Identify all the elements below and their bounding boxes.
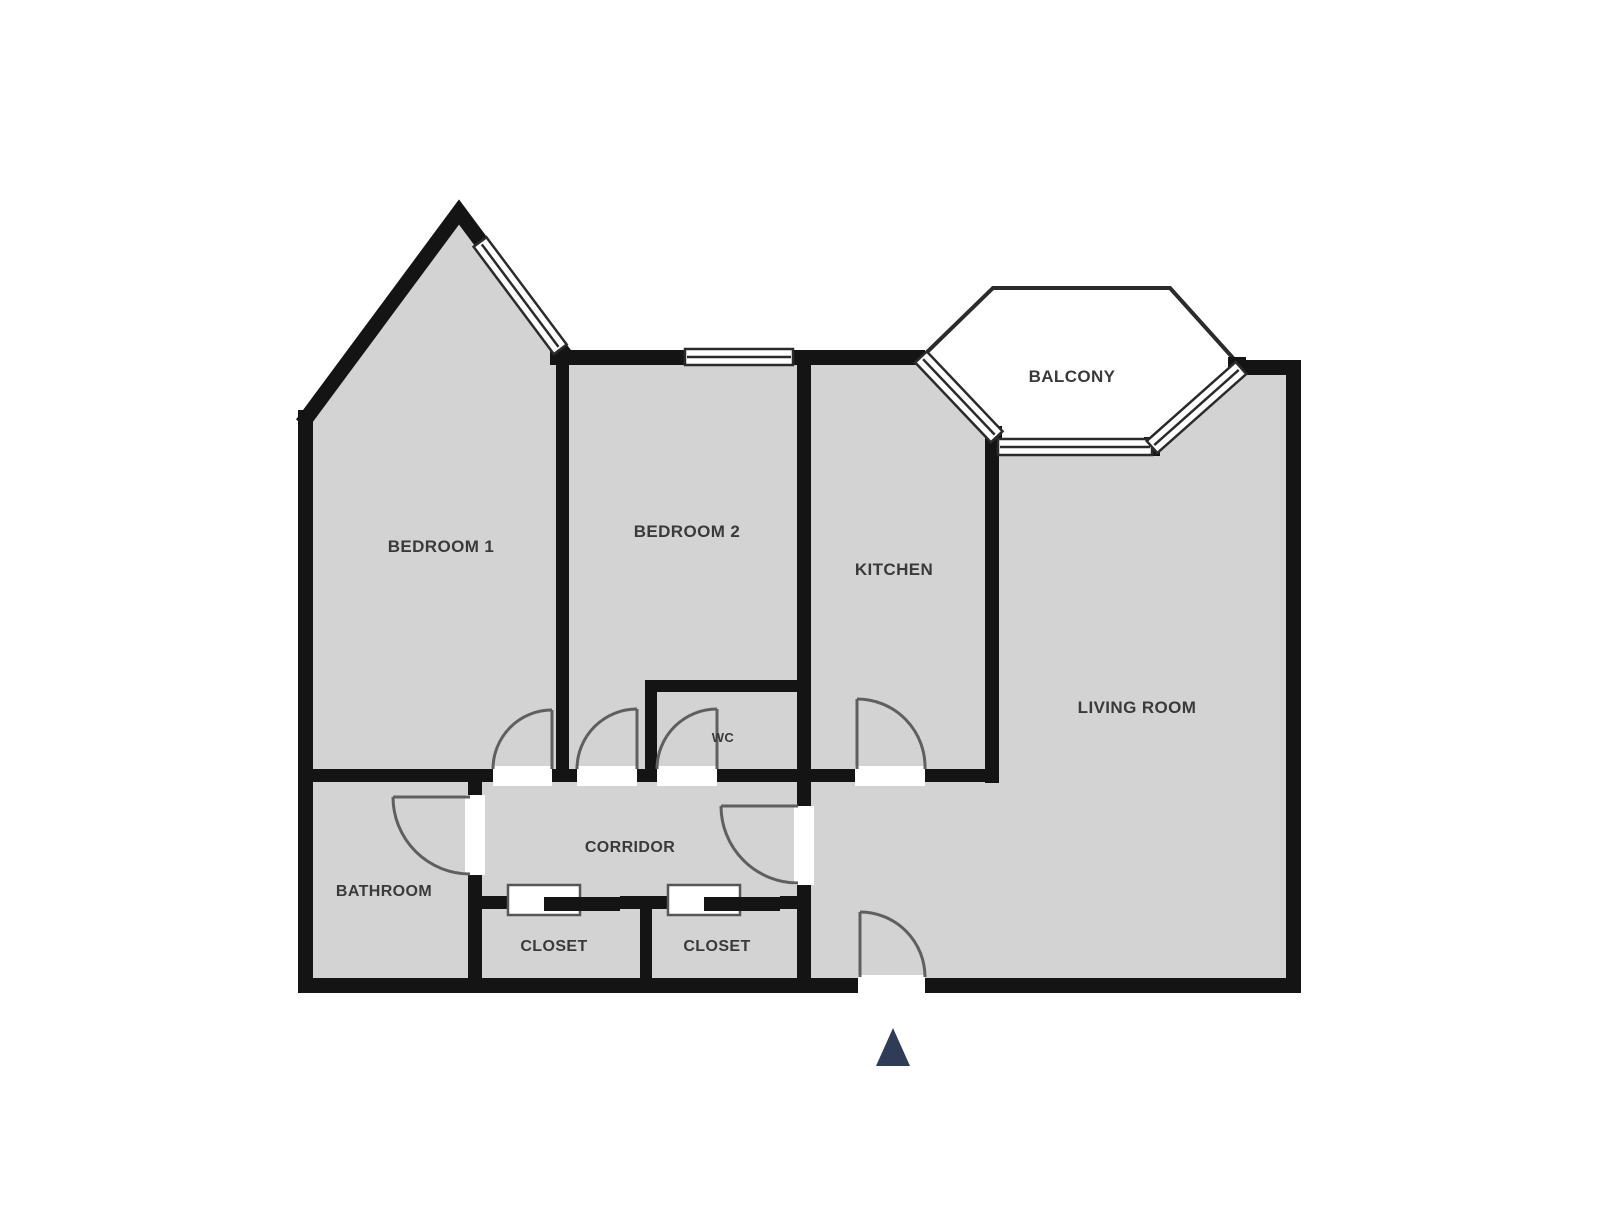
balcony-window-horizontal bbox=[998, 439, 1152, 455]
floor-plan-page: BEDROOM 1 BEDROOM 2 KITCHEN BALCONY LIVI… bbox=[0, 0, 1606, 1206]
room-label-closet-left: CLOSET bbox=[520, 938, 587, 955]
room-label-bedroom2: BEDROOM 2 bbox=[634, 522, 741, 541]
floor-plan-drawing: BEDROOM 1 BEDROOM 2 KITCHEN BALCONY LIVI… bbox=[0, 0, 1606, 1206]
room-label-closet-right: CLOSET bbox=[683, 938, 750, 955]
room-label-corridor: CORRIDOR bbox=[585, 839, 675, 856]
room-label-balcony: BALCONY bbox=[1029, 367, 1116, 386]
room-label-kitchen: KITCHEN bbox=[855, 560, 933, 579]
room-label-living-room: LIVING ROOM bbox=[1078, 698, 1197, 717]
room-label-wc: WC bbox=[712, 730, 735, 745]
bedroom2-window bbox=[685, 349, 793, 365]
room-label-bedroom1: BEDROOM 1 bbox=[388, 537, 495, 556]
entrance-arrow-icon bbox=[876, 1028, 910, 1066]
room-label-bathroom: BATHROOM bbox=[336, 883, 432, 900]
